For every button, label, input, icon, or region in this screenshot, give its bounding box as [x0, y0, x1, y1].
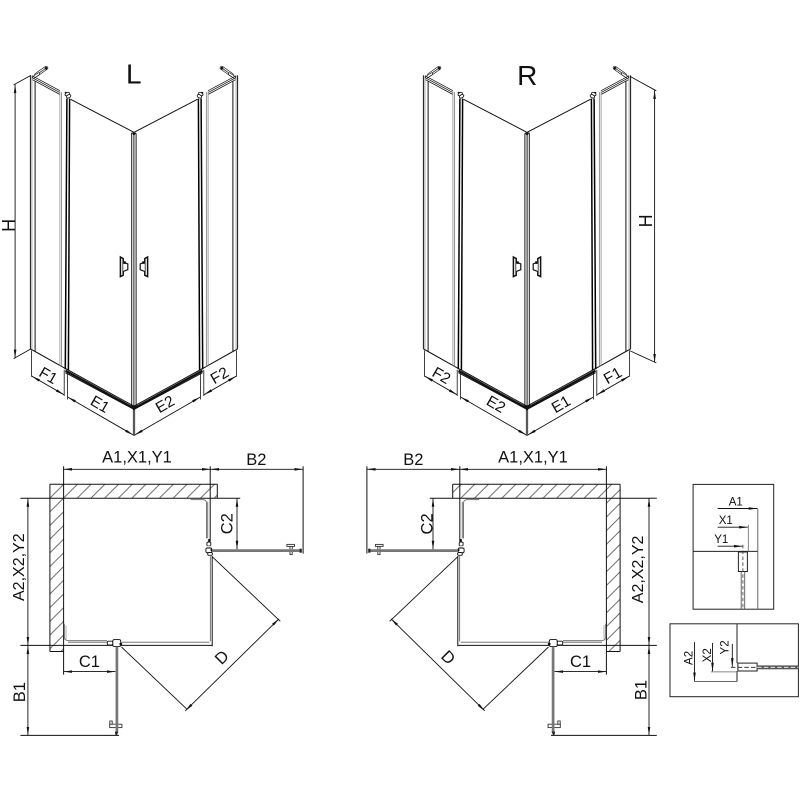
svg-text:L: L	[126, 59, 142, 90]
svg-text:D: D	[437, 647, 458, 668]
svg-text:E1: E1	[87, 393, 112, 417]
svg-text:A2: A2	[684, 651, 696, 665]
svg-text:B2: B2	[246, 451, 266, 469]
svg-text:F1: F1	[36, 364, 60, 388]
svg-text:F2: F2	[429, 364, 453, 388]
svg-text:C2: C2	[219, 513, 237, 534]
svg-text:B1: B1	[11, 682, 29, 702]
svg-text:H: H	[0, 219, 19, 232]
svg-text:F1: F1	[601, 364, 625, 388]
svg-text:A2,X2,Y2: A2,X2,Y2	[11, 533, 28, 601]
svg-text:F2: F2	[208, 364, 232, 388]
svg-text:R: R	[517, 60, 537, 91]
svg-text:C1: C1	[79, 653, 100, 671]
svg-text:A2,X2,Y2: A2,X2,Y2	[630, 536, 647, 604]
svg-text:A1,X1,Y1: A1,X1,Y1	[498, 449, 568, 467]
svg-text:C1: C1	[570, 653, 591, 671]
svg-text:H: H	[636, 214, 656, 227]
svg-text:A1: A1	[729, 497, 743, 509]
svg-text:B1: B1	[633, 680, 651, 700]
svg-text:D: D	[212, 647, 233, 668]
svg-text:X1: X1	[719, 515, 733, 527]
svg-text:Y2: Y2	[719, 640, 731, 654]
svg-text:E1: E1	[549, 393, 574, 417]
svg-text:C2: C2	[418, 513, 436, 534]
svg-text:B2: B2	[403, 451, 423, 469]
svg-text:A1,X1,Y1: A1,X1,Y1	[102, 449, 172, 467]
svg-text:Y1: Y1	[714, 534, 728, 546]
svg-text:X2: X2	[702, 648, 714, 662]
